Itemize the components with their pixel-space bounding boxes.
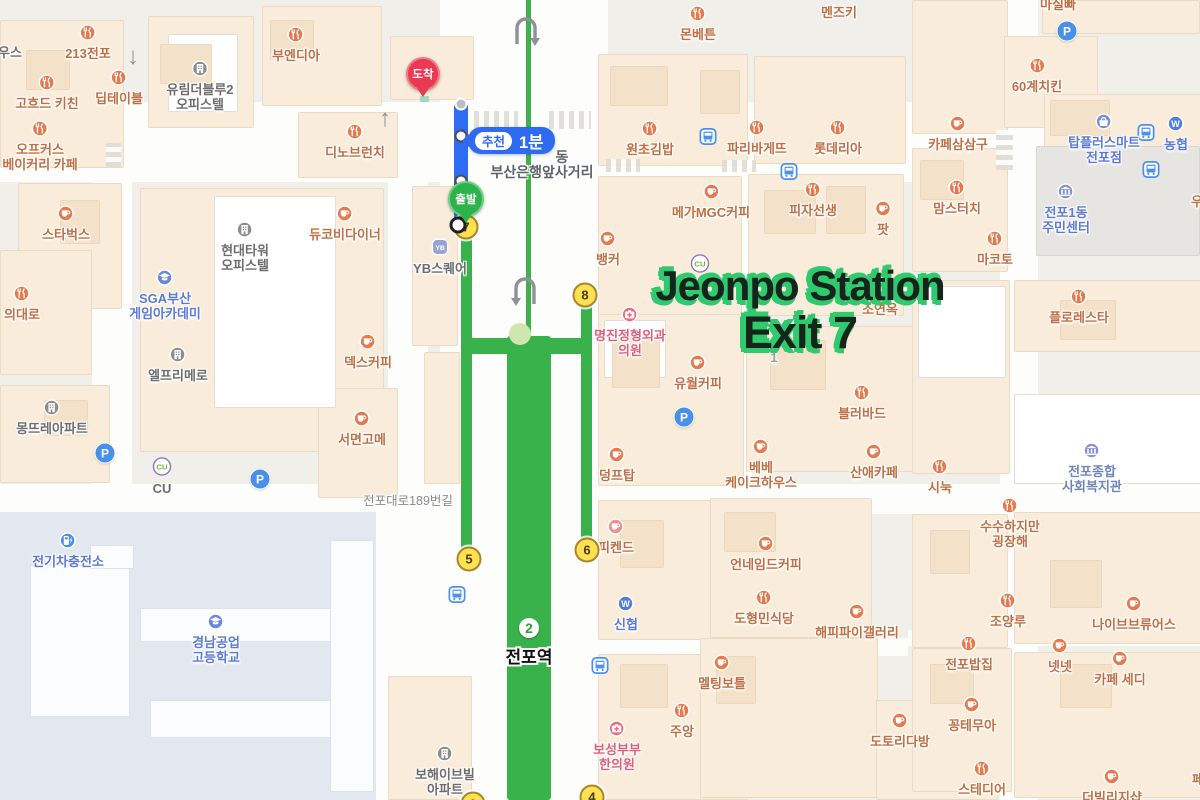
annotation-overlay: Jeonpo Station Exit 7 [655, 263, 944, 357]
map-poi[interactable]: SGA부산게임아카데미 [129, 269, 201, 321]
svg-text:YB: YB [435, 245, 445, 252]
poi-label: 전기차충전소 [32, 554, 104, 569]
svg-text:W: W [1172, 119, 1181, 129]
food-icon [38, 74, 55, 96]
school-building [30, 565, 130, 717]
public-icon [1058, 183, 1075, 205]
cafe-icon [714, 654, 731, 676]
poi-label: 덱스커피 [344, 355, 392, 370]
cafe-icon [848, 603, 865, 625]
cafe-icon [1111, 650, 1128, 672]
poi-label: 우 [1191, 194, 1200, 209]
poi-label: 덩프탑 [599, 468, 635, 483]
apt-icon [43, 399, 60, 421]
map-canvas[interactable]: ↑ ↓ 우스213전포고흐드 키친딥테이블오프커스베이커리 카페유림더블루2오피… [0, 0, 1200, 800]
map-poi[interactable]: 메가MGC커피 [672, 183, 750, 220]
poi-label: 오프커스 [16, 142, 64, 157]
map-poi[interactable]: 전기차충전소 [32, 532, 104, 569]
annotation-line2: Exit 7 [655, 309, 944, 357]
bus-stop-icon[interactable] [1143, 161, 1160, 183]
map-poi[interactable]: 고흐드 키친 [15, 74, 78, 111]
food-icon [32, 120, 49, 142]
poi-label: 팟 [877, 222, 889, 237]
poi-label: 디노브런치 [325, 145, 385, 160]
food-icon [642, 120, 659, 142]
map-poi[interactable]: 60계치킨 [1012, 57, 1062, 94]
uturn-arrow-icon [512, 16, 540, 46]
map-poi[interactable]: 해피파이갤러리 [815, 603, 899, 640]
public-icon [1084, 442, 1101, 464]
station-entrance-blob [509, 323, 531, 345]
bus-stop-icon[interactable] [700, 128, 717, 150]
poi-label: 고흐드 키친 [15, 96, 78, 111]
poi-label: 한의원 [599, 757, 635, 772]
poi-label: 케이크하우스 [725, 475, 797, 490]
parking-icon: P [95, 443, 116, 464]
food-icon [949, 179, 966, 201]
food-icon [80, 24, 97, 46]
poi-label: 아파트 [427, 782, 463, 797]
school-building [330, 540, 374, 792]
map-poi[interactable]: 딥테이블 [95, 69, 143, 106]
food-icon [347, 123, 364, 145]
apt-icon [437, 745, 454, 767]
poi-label: 탑플러스마트 [1068, 135, 1140, 150]
poi-label: 원초김밥 [626, 142, 674, 157]
arrive-marker-label: 도착 [406, 57, 440, 91]
map-poi[interactable]: 마코토 [977, 230, 1013, 267]
cafe-icon [336, 205, 353, 227]
crosswalk [722, 160, 756, 172]
map-poi[interactable]: 시눅 [928, 458, 952, 495]
map-poi[interactable]: 보성부부한의원 [593, 720, 641, 772]
poi-label: 피켄드 [598, 540, 634, 555]
map-poi[interactable]: 원초김밥 [626, 120, 674, 157]
poi-label: 전포점 [1086, 150, 1122, 165]
food-icon [830, 119, 847, 141]
poi-label: 수수하지만 [980, 519, 1040, 534]
map-poi[interactable]: 스타벅스 [42, 205, 90, 242]
map-poi[interactable]: 롯데리아 [814, 119, 862, 156]
poi-label: SGA부산 [139, 291, 191, 306]
poi-label: 피자선생 [789, 203, 837, 218]
map-poi[interactable]: 블러바드 [838, 384, 886, 421]
poi-label: 주민센터 [1042, 220, 1090, 235]
poi-label: 보성부부 [593, 742, 641, 757]
food-icon [756, 589, 773, 611]
poi-label: 마실빠 [1040, 0, 1076, 12]
food-icon [986, 230, 1003, 252]
svg-text:W: W [622, 599, 631, 609]
food-icon [1071, 288, 1088, 310]
map-poi[interactable]: 꽁테무아 [948, 696, 996, 733]
poi-label: 조양루 [990, 614, 1026, 629]
map-poi[interactable]: 유월커피 [674, 354, 722, 391]
poi-label: 도형민식당 [734, 611, 794, 626]
crosswalk [549, 111, 591, 129]
map-poi[interactable]: 전포1동주민센터 [1042, 183, 1090, 235]
poi-label: 카페 세디 [1094, 672, 1145, 687]
exit-marker-8[interactable]: 8 [573, 283, 598, 308]
school-icon [156, 269, 173, 291]
food-icon [1002, 497, 1019, 519]
map-poi[interactable]: W신협 [614, 595, 638, 632]
bus-stop-icon[interactable] [449, 586, 466, 608]
map-poi[interactable]: 우스 [0, 45, 22, 60]
map-poi[interactable]: 조양루 [990, 592, 1026, 629]
exit-marker-5[interactable]: 5 [457, 547, 482, 572]
poi-label: 롯데리아 [814, 141, 862, 156]
poi-label: 서면고메 [338, 432, 386, 447]
map-poi[interactable]: 전포종합사회복지관 [1062, 442, 1122, 494]
cafe-icon [1051, 637, 1068, 659]
food-icon [931, 458, 948, 480]
cafe-icon [599, 230, 616, 252]
building [620, 664, 668, 708]
poi-label: 전포1동 [1044, 205, 1087, 220]
food-icon [13, 285, 30, 307]
map-poi[interactable]: 우 [1191, 194, 1200, 209]
bankW-icon: W [617, 595, 634, 617]
map-poi[interactable]: 스테디어 [958, 760, 1006, 797]
map-poi[interactable]: 더빌리지샵 [1082, 768, 1142, 800]
map-poi[interactable]: 탑플러스마트전포점 [1068, 113, 1140, 165]
map-poi[interactable]: 멘즈키 [821, 5, 857, 20]
building-icon [237, 221, 254, 243]
poi-label: 베이커리 카페 [2, 157, 77, 172]
cafe-icon [757, 535, 774, 557]
building [930, 530, 970, 574]
map-poi[interactable]: 현대타워오피스텔 [221, 221, 269, 273]
map-poi[interactable]: 덱스커피 [344, 333, 392, 370]
poi-label: YB스퀘어 [413, 261, 467, 276]
poi-label: 유림더블루2 [166, 82, 233, 97]
map-poi[interactable]: 마실빠 [1040, 0, 1076, 12]
cafe-icon [360, 333, 377, 355]
map-poi[interactable]: 몬베튼 [680, 5, 716, 42]
subway-line2-badge[interactable]: 2 [519, 618, 539, 638]
poi-label: 의원 [618, 343, 642, 358]
cafe-icon [964, 696, 981, 718]
cafe-icon [690, 354, 707, 376]
bus-stop-icon[interactable] [592, 657, 609, 679]
poi-label: 마코토 [977, 252, 1013, 267]
cafe-icon [950, 115, 967, 137]
food-icon [673, 702, 690, 724]
cafe-icon [608, 446, 625, 468]
crosswalk [106, 143, 121, 167]
arrive-marker[interactable]: 도착 [406, 57, 440, 97]
map-poi[interactable]: 의대로 [4, 285, 40, 322]
poi-label: 파리바게뜨 [727, 141, 787, 156]
down-arrow-icon: ↓ [127, 43, 139, 71]
map-poi[interactable]: 도형민식당 [734, 589, 794, 626]
map-poi[interactable]: 카페삼삼구 [928, 115, 988, 152]
station-name-label[interactable]: 전포역 [506, 643, 553, 668]
poi-label: 213전포 [65, 46, 111, 61]
uturn-arrow-icon [511, 276, 539, 306]
poi-label: 멘즈키 [821, 5, 857, 20]
exit-marker-6[interactable]: 6 [575, 538, 600, 563]
food-icon [749, 119, 766, 141]
poi-label: 나이브브류어스 [1092, 617, 1176, 632]
map-poi[interactable]: 피자선생 [789, 181, 837, 218]
map-poi[interactable]: 듀코비다이너 [309, 205, 381, 242]
map-poi[interactable]: YBYB스퀘어 [413, 238, 467, 276]
hospital-icon [621, 306, 638, 328]
poi-label: 엘프리메로 [148, 368, 208, 383]
cafe-icon [892, 712, 909, 734]
poi-label: 카페삼삼구 [928, 137, 988, 152]
yb-icon: YB [431, 238, 449, 261]
map-poi[interactable]: 유림더블루2오피스텔 [166, 60, 233, 112]
cafe-icon [875, 200, 892, 222]
exit-path-east [581, 300, 592, 552]
map-poi[interactable]: 베베케이크하우스 [725, 438, 797, 490]
map-poi[interactable]: W농협 [1164, 115, 1188, 152]
cafe-icon [58, 205, 75, 227]
map-poi[interactable]: 수수하지만굉장해 [980, 497, 1040, 549]
road-label: 전포대로189번길 [363, 490, 453, 509]
poi-label: 몬베튼 [680, 27, 716, 42]
food-icon [689, 5, 706, 27]
poi-label: 언네임드커피 [730, 557, 802, 572]
poi-label: 보해이브빌 [415, 767, 475, 782]
school-building [150, 700, 357, 738]
map-poi[interactable]: 주앙 [670, 702, 694, 739]
city-block [424, 352, 460, 484]
food-icon [805, 181, 822, 203]
poi-label: 오피스텔 [176, 97, 224, 112]
poi-label: 뱅커 [596, 252, 620, 267]
hospital-icon [609, 720, 626, 742]
map-poi[interactable]: CUCU [153, 457, 172, 496]
building [610, 66, 668, 106]
poi-label: 딥테이블 [95, 91, 143, 106]
parking-icon: P [1057, 21, 1078, 42]
map-poi[interactable]: 뱅커 [596, 230, 620, 267]
cafe-icon [1125, 595, 1142, 617]
poi-label: 오피스텔 [221, 258, 269, 273]
poi-label: 주앙 [670, 724, 694, 739]
poi-label: 게임아카데미 [129, 306, 201, 321]
map-poi[interactable]: 카페 세디 [1094, 650, 1145, 687]
poi-label: 맘스터치 [933, 201, 981, 216]
depart-marker[interactable]: 출발 [448, 181, 484, 223]
cu-icon: CU [153, 457, 172, 481]
poi-label: 유월커피 [674, 376, 722, 391]
map-poi[interactable]: 213전포 [65, 24, 111, 61]
poi-label: 의대로 [4, 307, 40, 322]
route-summary-badge[interactable]: 추천 1분 [468, 127, 555, 154]
road-label: 동 [556, 147, 569, 167]
building-icon [170, 346, 187, 368]
building [700, 70, 740, 114]
poi-label: 농협 [1164, 137, 1188, 152]
map-poi[interactable]: 페 [1192, 772, 1200, 787]
map-poi[interactable]: 전포밥집 [945, 635, 993, 672]
poi-label: 베베 [749, 460, 773, 475]
exit-path-west [461, 228, 472, 560]
route-end-cap [455, 98, 468, 111]
parking-icon: P [250, 469, 271, 490]
map-poi[interactable]: 보해이브빌아파트 [415, 745, 475, 797]
ev-icon [59, 532, 76, 554]
poi-label: 스타벅스 [42, 227, 90, 242]
map-poi[interactable]: 경남공업고등학교 [192, 613, 240, 665]
station-footprint [507, 336, 551, 800]
parking-icon: P [674, 407, 695, 428]
map-poi[interactable]: 엘프리메로 [148, 346, 208, 383]
map-poi[interactable]: 서면고메 [338, 410, 386, 447]
food-icon [111, 69, 128, 91]
map-poi[interactable]: 몽뜨레아파트 [16, 399, 88, 436]
cafe-icon [752, 438, 769, 460]
dessert-icon [607, 518, 624, 540]
poi-label: 더빌리지샵 [1082, 790, 1142, 800]
cafe-icon [354, 410, 371, 432]
map-poi[interactable]: 팟 [875, 200, 892, 237]
poi-label: 시눅 [928, 480, 952, 495]
map-poi[interactable]: 파리바게뜨 [727, 119, 787, 156]
building-icon [192, 60, 209, 82]
map-poi[interactable]: 플로레스타 [1049, 288, 1109, 325]
food-icon [1029, 57, 1046, 79]
map-poi[interactable]: 멜팅보틀 [698, 654, 746, 691]
poi-label: 전포종합 [1068, 464, 1116, 479]
city-block [912, 0, 1008, 134]
crosswalk [606, 159, 640, 172]
cafe-icon [866, 443, 883, 465]
poi-label: 전포밥집 [945, 657, 993, 672]
food-icon [999, 592, 1016, 614]
map-poi[interactable]: 디노브런치 [325, 123, 385, 160]
map-poi[interactable]: 도토리다방 [870, 712, 930, 749]
poi-label: 현대타워 [221, 243, 269, 258]
poi-label: 멜팅보틀 [698, 676, 746, 691]
food-icon [961, 635, 978, 657]
poi-label: 사회복지관 [1062, 479, 1122, 494]
poi-label: 블러바드 [838, 406, 886, 421]
annotation-line1: Jeonpo Station [655, 263, 944, 309]
poi-label: 산애카페 [850, 465, 898, 480]
bankW-icon: W [1167, 115, 1184, 137]
poi-label: 신협 [614, 617, 638, 632]
map-poi[interactable]: 언네임드커피 [730, 535, 802, 572]
poi-label: 도토리다방 [870, 734, 930, 749]
school-building [140, 608, 342, 642]
cafe-icon [702, 183, 719, 205]
poi-label: 60계치킨 [1012, 79, 1062, 94]
food-icon [288, 26, 305, 48]
school-icon [208, 613, 225, 635]
poi-label: CU [153, 481, 172, 496]
svg-text:CU: CU [156, 463, 168, 472]
poi-label: 페 [1192, 772, 1200, 787]
map-poi[interactable]: 맘스터치 [933, 179, 981, 216]
depart-marker-label: 출발 [448, 181, 484, 217]
poi-label: 굉장해 [992, 534, 1028, 549]
map-poi[interactable]: 산애카페 [850, 443, 898, 480]
map-poi[interactable]: 덩프탑 [599, 446, 635, 483]
poi-label: 몽뜨레아파트 [16, 421, 88, 436]
food-icon [854, 384, 871, 406]
crosswalk [996, 130, 1013, 170]
recommend-pill: 추천 [475, 132, 512, 150]
poi-label: 넷넷 [1048, 659, 1072, 674]
food-icon [974, 760, 991, 782]
poi-label: 플로레스타 [1049, 310, 1109, 325]
poi-label: 경남공업 [192, 635, 240, 650]
poi-label: 메가MGC커피 [672, 205, 750, 220]
poi-label: 스테디어 [958, 782, 1006, 797]
poi-label: 고등학교 [192, 650, 240, 665]
poi-label: 꽁테무아 [948, 718, 996, 733]
route-duration: 1분 [519, 129, 543, 153]
poi-label: 듀코비다이너 [309, 227, 381, 242]
poi-label: 부엔디아 [272, 48, 320, 63]
shop-icon [1095, 113, 1112, 135]
poi-label: 우스 [0, 45, 22, 60]
map-poi[interactable]: 오프커스베이커리 카페 [2, 120, 77, 172]
map-poi[interactable]: 넷넷 [1048, 637, 1072, 674]
cafe-icon [1104, 768, 1121, 790]
map-poi[interactable]: 피켄드 [598, 518, 634, 555]
poi-label: 해피파이갤러리 [815, 625, 899, 640]
map-poi[interactable]: 나이브브류어스 [1092, 595, 1176, 632]
map-poi[interactable]: 부엔디아 [272, 26, 320, 63]
road-label: 부산은행앞사거리 [490, 162, 593, 182]
